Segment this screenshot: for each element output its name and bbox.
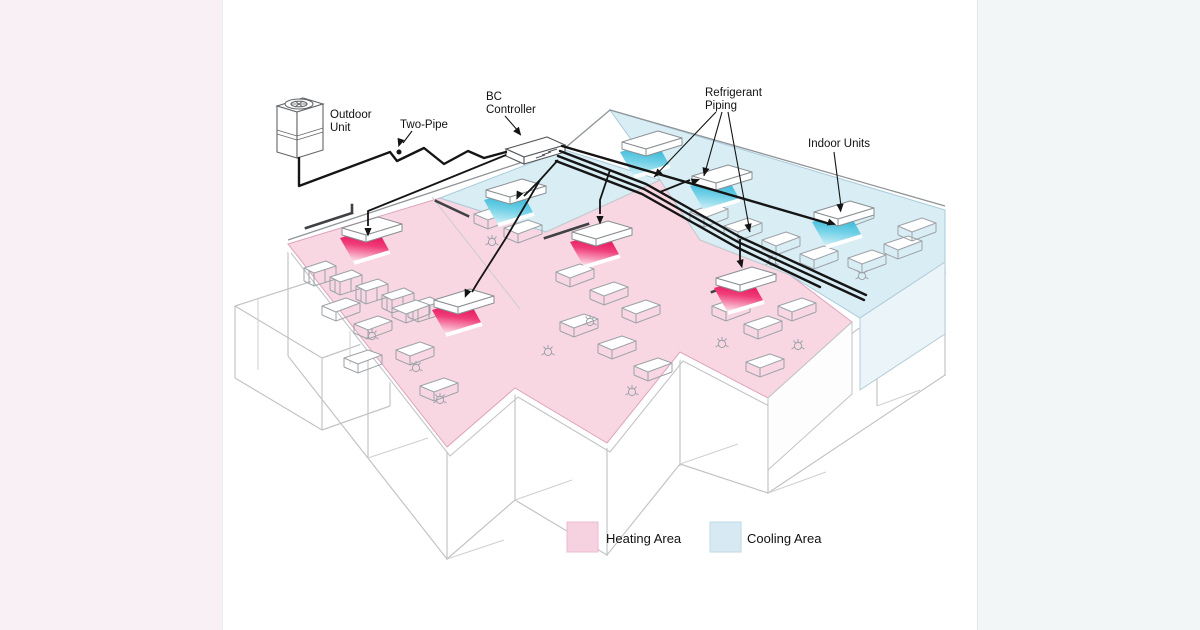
legend: Heating Area Cooling Area [567,522,822,552]
hvac-isometric-diagram: Outdoor Unit Two-Pipe BC Controller Refr… [0,0,1200,630]
diagram-page: Outdoor Unit Two-Pipe BC Controller Refr… [0,0,1200,630]
outdoor-unit [277,98,323,158]
legend-heating-label: Heating Area [606,531,682,546]
label-outdoor-unit-line1: Outdoor [330,109,372,121]
legend-cooling-label: Cooling Area [747,531,822,546]
label-outdoor-unit-line2: Unit [330,122,351,134]
label-indoor-units: Indoor Units [808,138,870,150]
two-pipe-junction-dot [397,150,402,155]
legend-heating-swatch [567,522,598,552]
label-refrigerant-piping-line2: Piping [705,100,737,112]
label-refrigerant-piping-line1: Refrigerant [705,87,763,99]
legend-cooling-swatch [710,522,741,552]
label-bc-controller-line2: Controller [486,104,536,116]
label-two-pipe: Two-Pipe [400,119,448,131]
label-bc-controller-line1: BC [486,91,502,103]
